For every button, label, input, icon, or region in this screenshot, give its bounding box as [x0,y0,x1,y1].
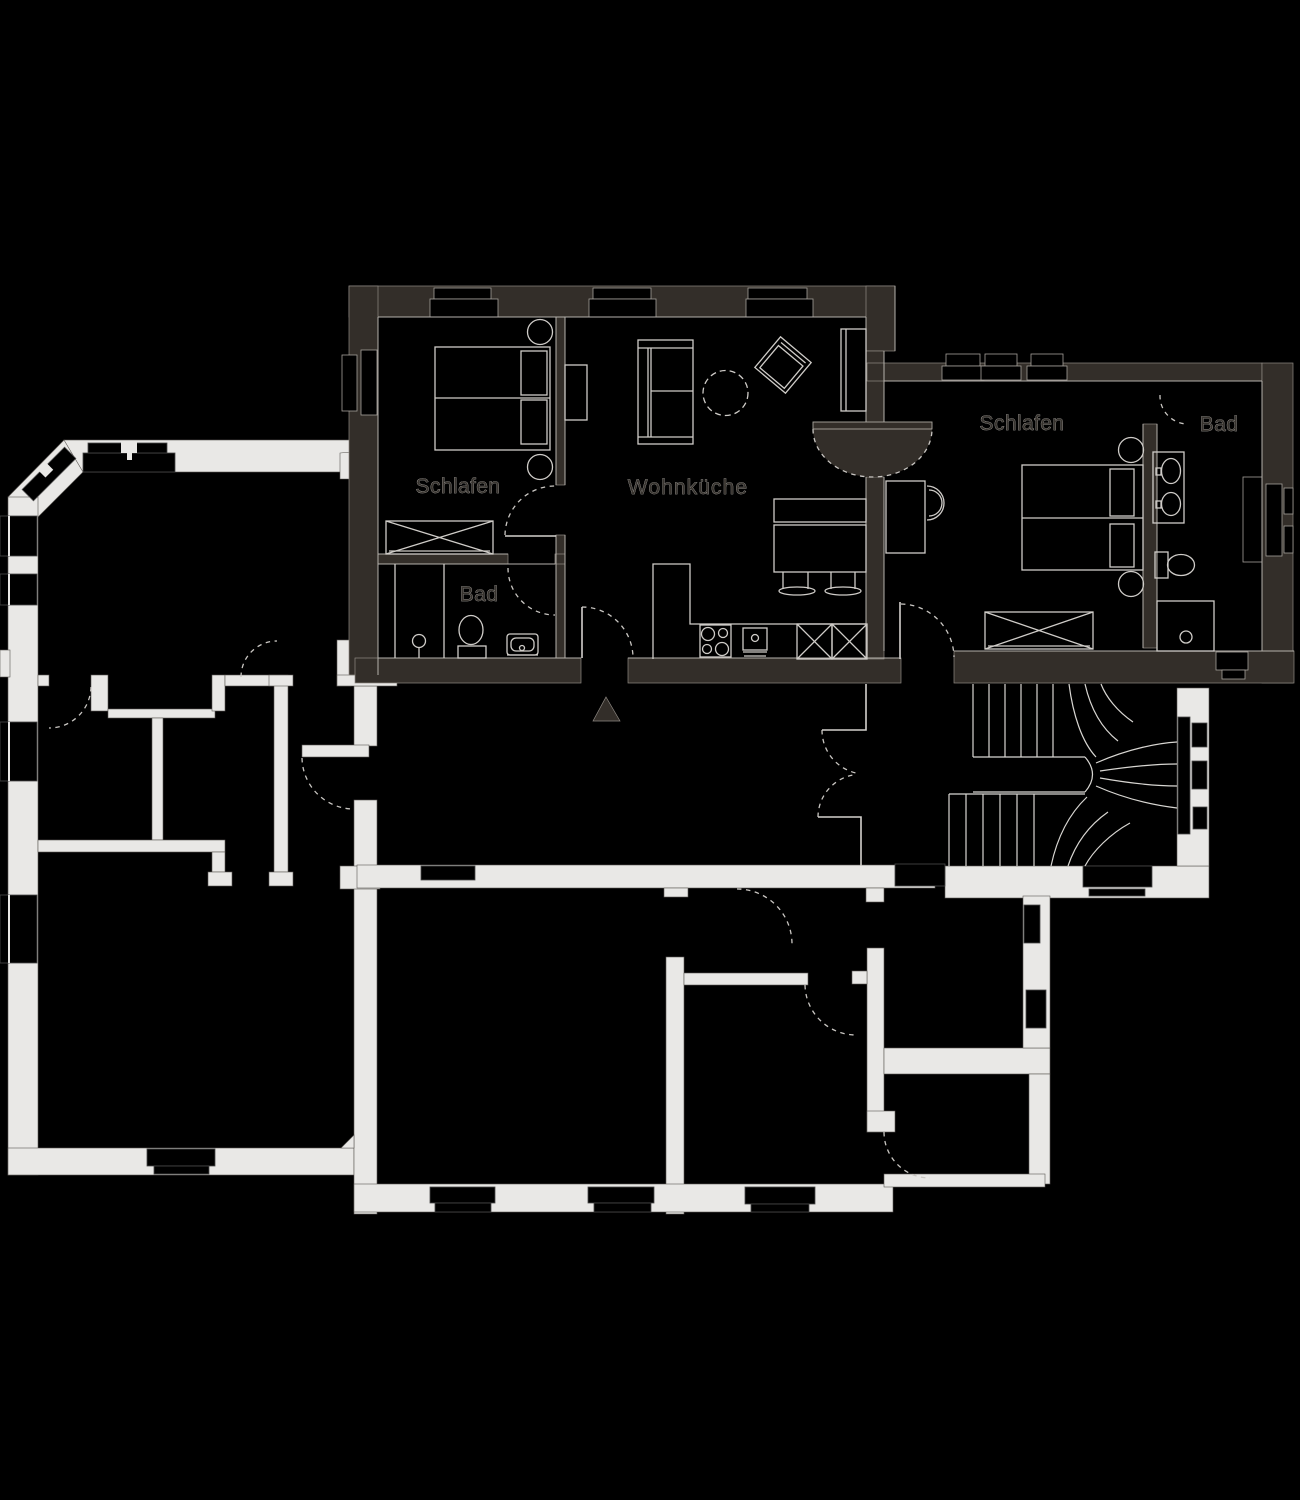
svg-text:Schlafen: Schlafen [980,412,1065,435]
svg-text:Wohnküche: Wohnküche [628,476,748,499]
svg-text:Bad: Bad [1200,413,1239,436]
svg-text:Bad: Bad [460,583,499,606]
svg-text:Schlafen: Schlafen [416,475,501,498]
